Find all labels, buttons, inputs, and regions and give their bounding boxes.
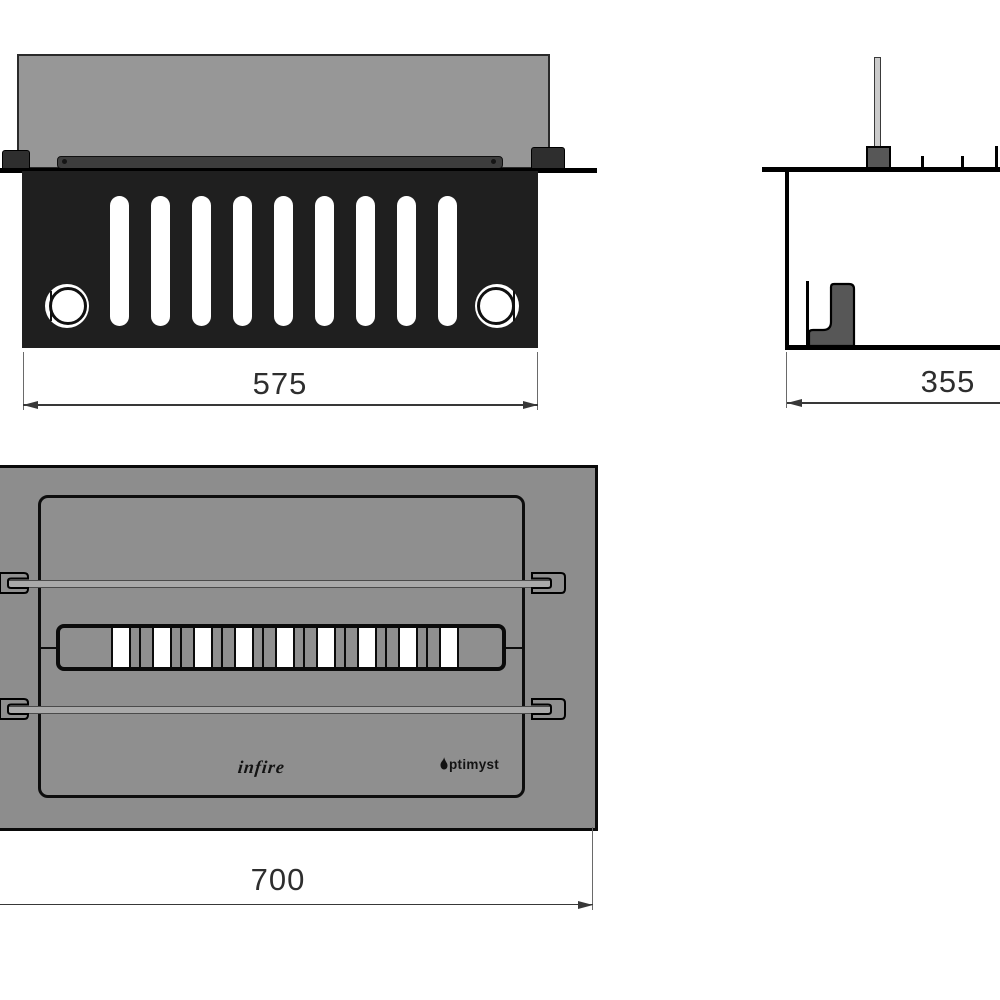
strip-divider [221, 628, 224, 667]
brand-logo-optimyst: ptimyst [438, 757, 548, 772]
strip-slot [316, 628, 336, 667]
strip-divider [139, 628, 142, 667]
brand-logo-infire: infire [237, 757, 339, 778]
rod-hook-right-lower [531, 696, 568, 722]
strip-divider [426, 628, 429, 667]
strip-divider [344, 628, 347, 667]
dimension-text-width-top: 700 [198, 862, 358, 898]
strip-slot [357, 628, 377, 667]
strip-slot [193, 628, 213, 667]
strip-divider [385, 628, 388, 667]
rod-hook-right-upper [531, 570, 568, 596]
strip-slot [111, 628, 131, 667]
strip-divider [262, 628, 265, 667]
strip-slot [152, 628, 172, 667]
strip-slot [439, 628, 459, 667]
arrowhead-right [578, 901, 593, 909]
cross-rod-upper [8, 580, 552, 588]
strip-slot [234, 628, 254, 667]
flame-icon [438, 757, 449, 771]
strip-divider [303, 628, 306, 667]
strip-divider [180, 628, 183, 667]
strip-connector-left [38, 647, 56, 649]
cross-rod-lower [8, 706, 552, 714]
rod-hook-left-lower [0, 696, 34, 722]
technical-drawing-canvas: 575 355 [0, 0, 1000, 1000]
extension-line [592, 827, 593, 910]
brand-logo-optimyst-text: ptimyst [449, 757, 499, 772]
strip-slot [275, 628, 295, 667]
rod-hook-left-upper [0, 570, 34, 596]
dimension-line-700 [0, 904, 593, 906]
top-view: infire ptimyst 700 [0, 0, 1000, 1000]
strip-slot [398, 628, 418, 667]
